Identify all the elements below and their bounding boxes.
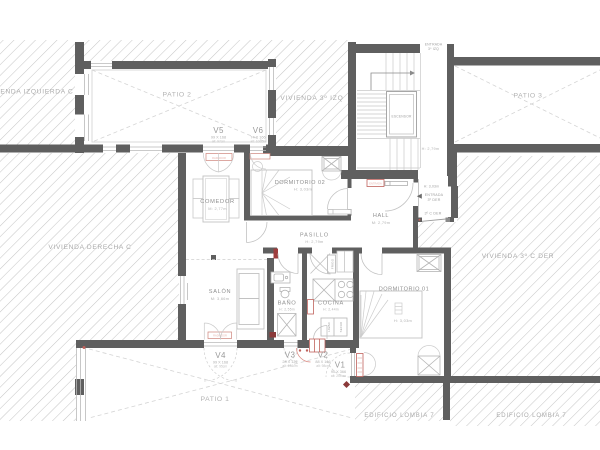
svg-text:V6: V6 [253, 126, 264, 135]
svg-text:V3: V3 [285, 351, 296, 360]
svg-text:ENTRADA: ENTRADA [425, 193, 444, 197]
svg-text:VIVIENDA 3º IZQ: VIVIENDA 3º IZQ [280, 95, 343, 102]
svg-text:ENTRADA: ENTRADA [425, 43, 443, 47]
svg-text:VIVIENDA IZQUIERDA C: VIVIENDA IZQUIERDA C [0, 89, 74, 96]
svg-text:VIVIENDA 3º C DER: VIVIENDA 3º C DER [482, 253, 555, 260]
svg-text:COCINA: COCINA [318, 301, 344, 307]
svg-text:3º C DER: 3º C DER [424, 212, 441, 216]
svg-text:FRIGO: FRIGO [331, 258, 335, 269]
svg-text:alt: 136cm: alt: 136cm [282, 364, 297, 368]
svg-text:V2: V2 [318, 351, 329, 360]
svg-text:PATIO 3: PATIO 3 [514, 93, 543, 100]
svg-text:H: 2,44m: H: 2,44m [323, 308, 339, 312]
svg-text:3º DER: 3º DER [427, 198, 440, 202]
svg-text:ESCENSOR: ESCENSOR [391, 115, 412, 119]
svg-text:alt: 95cm: alt: 95cm [214, 365, 228, 369]
svg-text:alt: 97cm: alt: 97cm [212, 140, 226, 144]
svg-text:H: 2,79m: H: 2,79m [422, 147, 440, 151]
svg-text:EDIFICIO LOMBIA 7: EDIFICIO LOMBIA 7 [496, 413, 566, 419]
svg-text:M: 2,77m: M: 2,77m [208, 206, 227, 211]
svg-text:H: 2,55m: H: 2,55m [279, 308, 295, 312]
svg-text:LAVAD: LAVAD [327, 322, 331, 332]
svg-text:H: 3,03m: H: 3,03m [394, 318, 412, 323]
svg-text:alt: 100cm: alt: 100cm [250, 140, 265, 144]
svg-text:M: 3,66m: M: 3,66m [211, 296, 230, 301]
svg-text:V1: V1 [335, 361, 346, 370]
svg-text:DORMITORIO 01: DORMITORIO 01 [379, 287, 430, 293]
svg-text:alt: 250cm: alt: 250cm [331, 374, 346, 378]
svg-text:BAÑO: BAÑO [278, 300, 297, 307]
svg-text:HALL: HALL [373, 213, 389, 219]
svg-text:PATIO 1: PATIO 1 [201, 396, 230, 403]
svg-text:3º IZQ: 3º IZQ [428, 47, 439, 51]
svg-text:M: 2,79m: M: 2,79m [372, 220, 391, 225]
svg-text:alt: 98cm: alt: 98cm [316, 364, 330, 368]
svg-text:SALÓN: SALÓN [209, 288, 231, 295]
svg-text:H: 3,03m: H: 3,03m [424, 185, 439, 189]
svg-text:H: 3,03m: H: 3,03m [294, 187, 312, 192]
svg-text:H: 2,79m: H: 2,79m [305, 239, 323, 244]
svg-text:PASILLO: PASILLO [300, 233, 329, 239]
svg-text:VIVIENDA DERECHA C: VIVIENDA DERECHA C [48, 244, 131, 251]
svg-text:V4: V4 [215, 351, 226, 360]
svg-text:DORMITORIO 02: DORMITORIO 02 [275, 180, 326, 186]
svg-text:V5: V5 [213, 126, 224, 135]
svg-text:EDIFICIO LOMBIA 7: EDIFICIO LOMBIA 7 [364, 413, 434, 419]
svg-text:COMEDOR: COMEDOR [200, 199, 235, 205]
svg-text:ENTRADA: ENTRADA [369, 182, 382, 186]
svg-text:PATIO 2: PATIO 2 [163, 92, 192, 99]
svg-text:RADIADOR: RADIADOR [212, 156, 226, 160]
svg-text:SECAD: SECAD [339, 322, 343, 333]
